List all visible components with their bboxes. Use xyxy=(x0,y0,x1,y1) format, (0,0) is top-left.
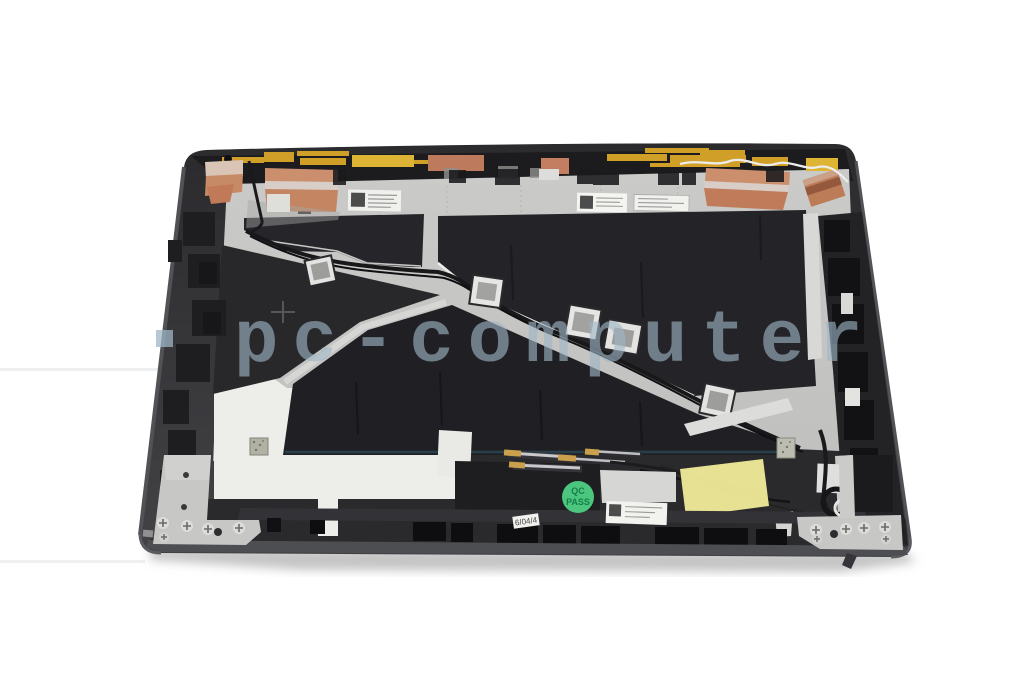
svg-text:QC: QC xyxy=(571,486,585,496)
svg-text:PASS: PASS xyxy=(566,497,590,507)
svg-text:pc-computer: pc-computer xyxy=(234,300,876,384)
